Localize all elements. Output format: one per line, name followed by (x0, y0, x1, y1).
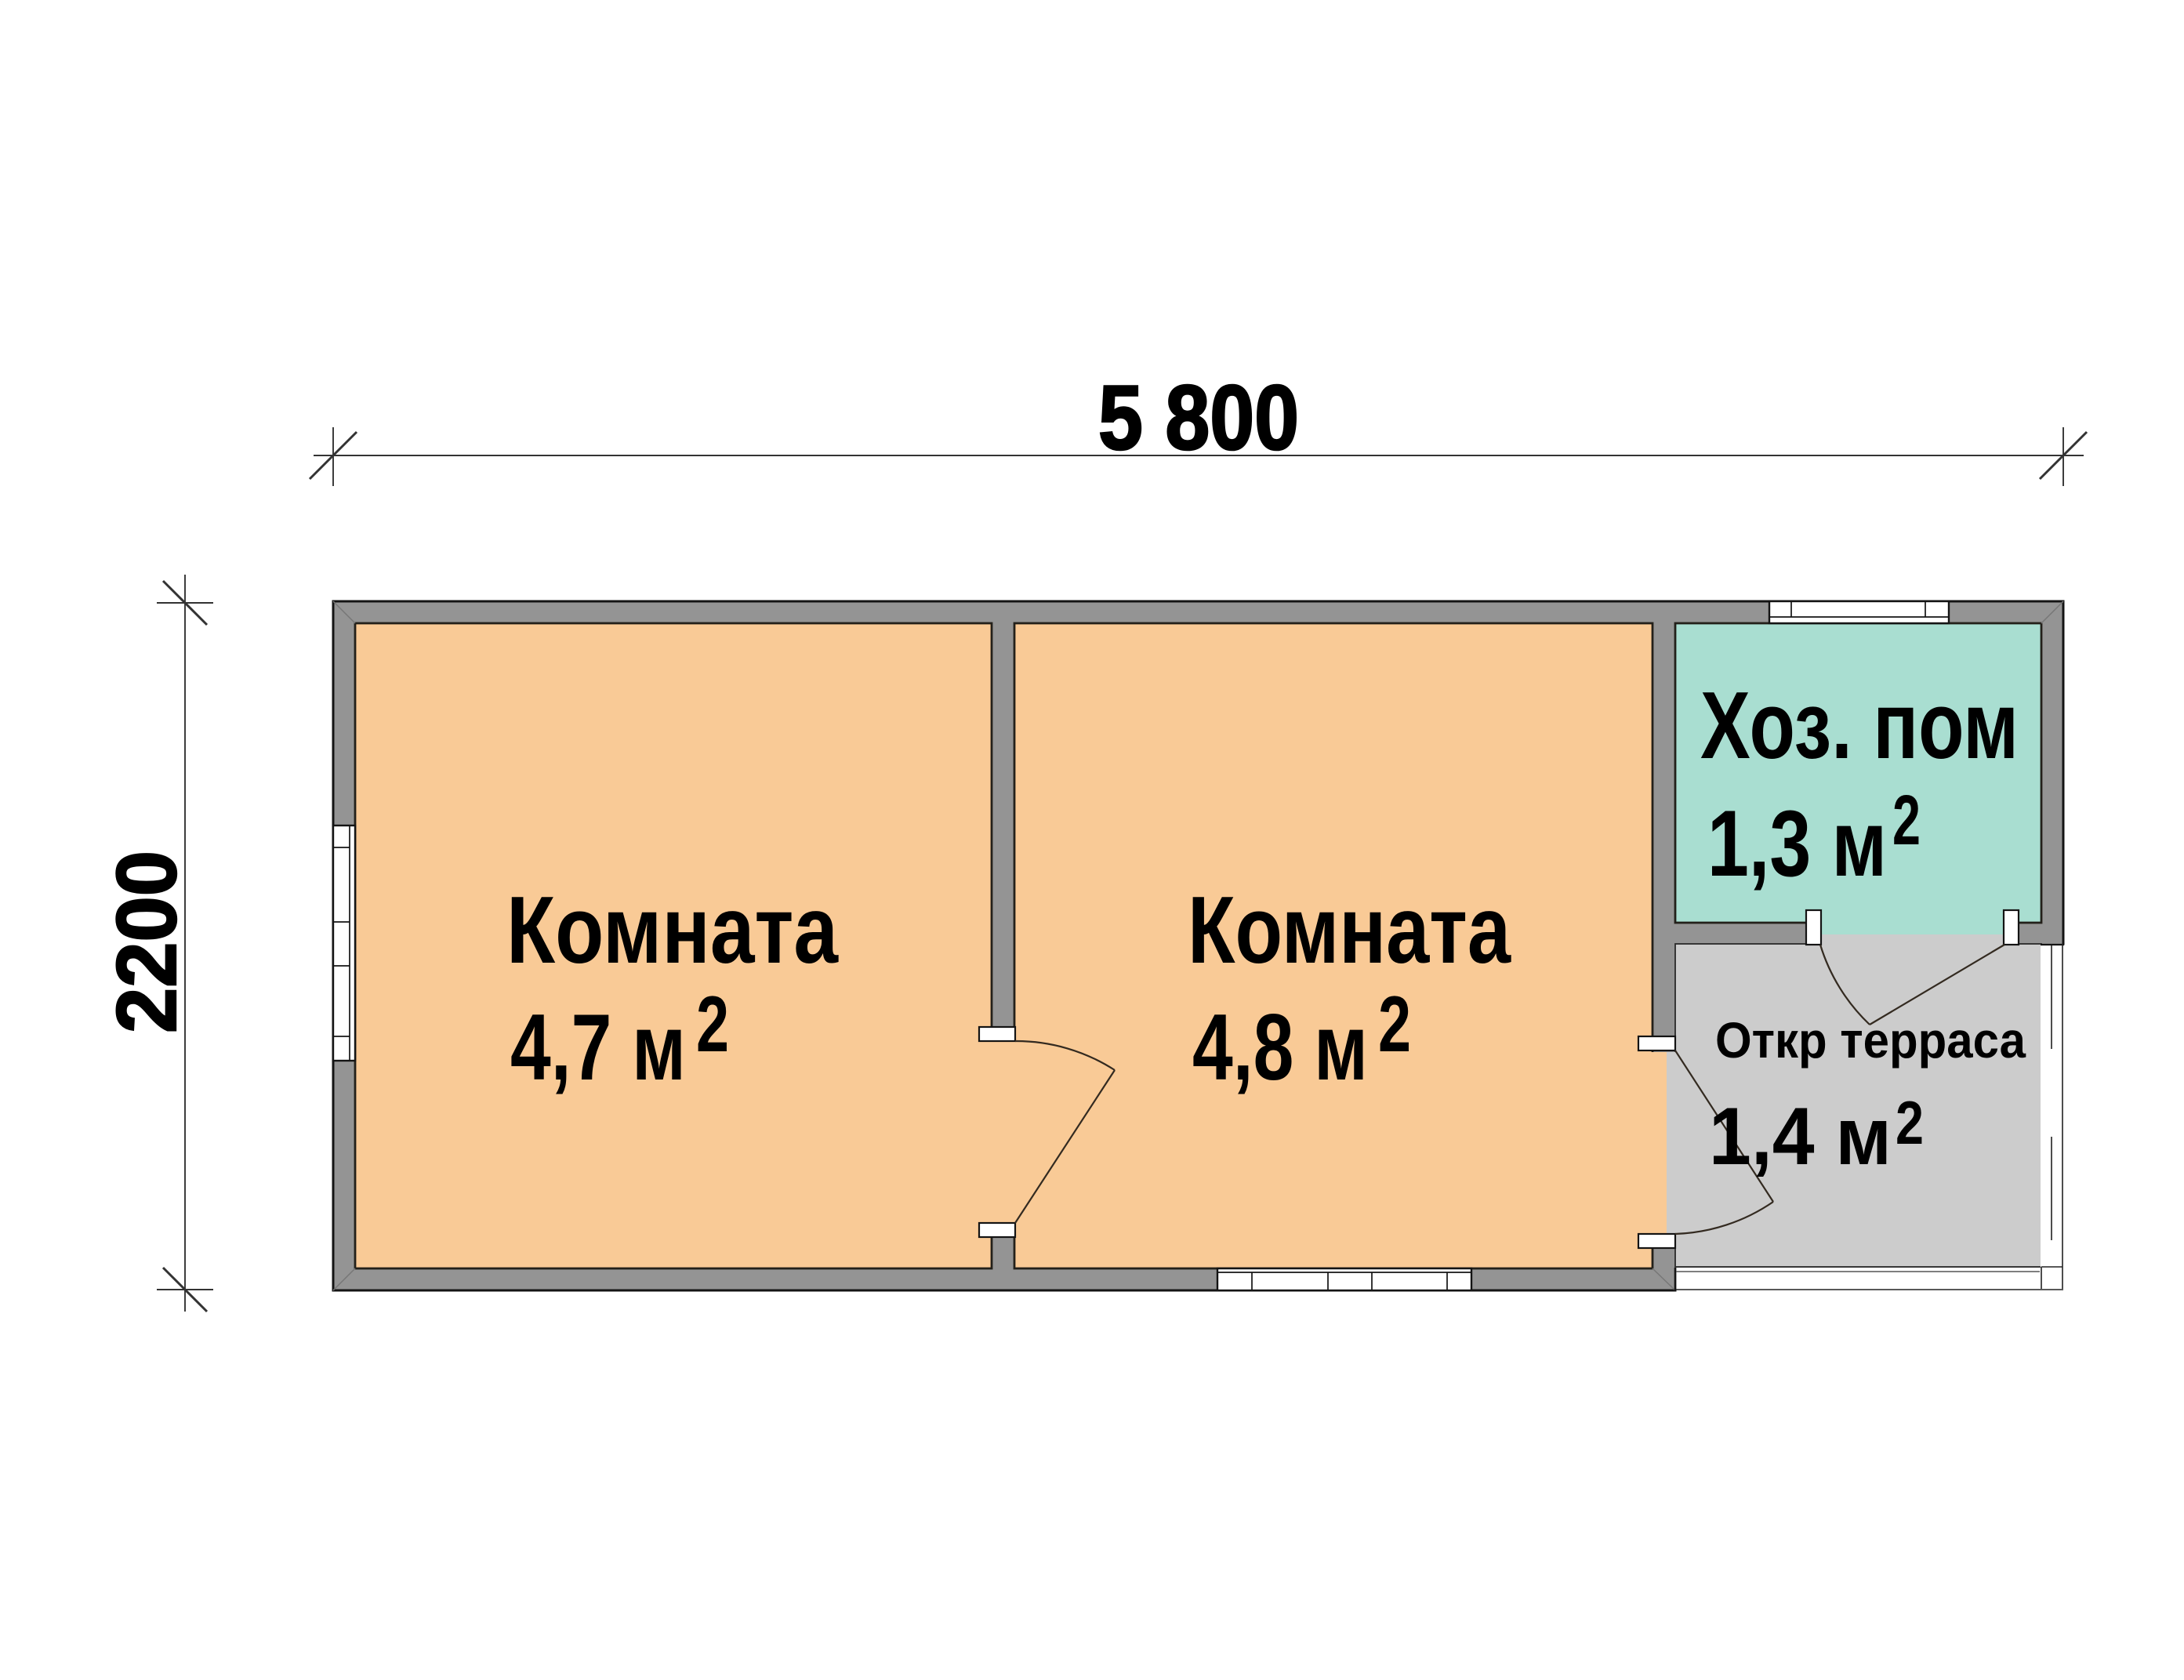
svg-text:4,8 м: 4,8 м (1192, 995, 1368, 1100)
svg-text:Комната: Комната (506, 876, 839, 983)
svg-text:1,4 м: 1,4 м (1709, 1091, 1892, 1182)
svg-text:Хоз. пом: Хоз. пом (1700, 672, 2019, 778)
svg-text:5 800: 5 800 (1098, 366, 1299, 469)
svg-text:1,3 м: 1,3 м (1707, 791, 1887, 896)
svg-text:2200: 2200 (99, 851, 194, 1033)
svg-text:2: 2 (696, 981, 729, 1069)
svg-text:4,7 м: 4,7 м (510, 995, 686, 1100)
svg-text:Откр терраса: Откр терраса (1715, 1012, 2026, 1069)
svg-text:2: 2 (1892, 782, 1921, 860)
svg-text:Комната: Комната (1188, 876, 1511, 983)
svg-text:2: 2 (1378, 981, 1411, 1069)
svg-text:2: 2 (1896, 1088, 1924, 1157)
